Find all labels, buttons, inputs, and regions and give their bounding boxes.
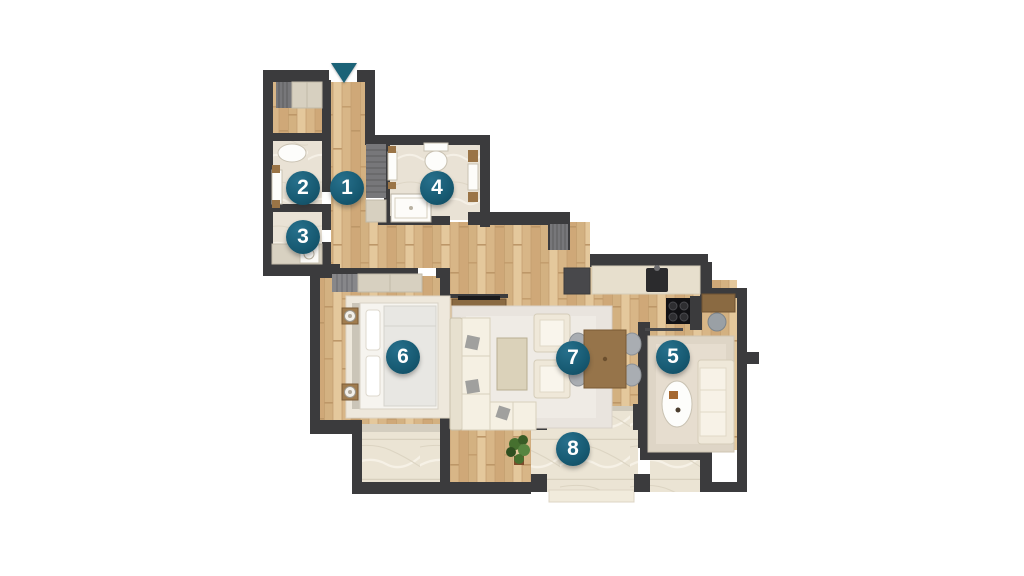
room5-sofa [698,360,734,444]
toilet-bowl [425,151,447,171]
pillow [366,356,380,396]
stove [666,298,690,324]
pillow [366,310,380,350]
tv [458,296,500,300]
tray [669,391,678,399]
balcony8-east-floor [650,460,700,492]
cabinet [468,150,478,162]
sofa-pillow [465,335,480,350]
kitchen-sink [646,268,668,292]
cabinet [468,164,478,190]
oval-coffee-table [662,381,692,427]
entry-wardrobe [276,82,322,108]
desk [702,294,735,312]
washbasin [278,144,306,162]
west-balcony-floor [362,430,440,484]
cabinet [272,165,280,173]
desk-chair [708,313,726,331]
sink [388,152,397,180]
cabinet [272,200,280,208]
room5-furniture [648,336,734,452]
blanket [384,306,436,406]
floor-plan: 12345678 [0,0,1024,576]
bed [352,303,438,409]
shaft-louver [366,144,386,222]
bedroom-wardrobe [332,274,422,292]
balcony-outer-slab [549,490,634,502]
fridge [564,268,590,294]
armchair [534,314,570,352]
living-room-furniture [450,296,641,430]
coffee-table [497,338,527,390]
entrance-hall-floor [331,82,366,224]
floor-plan-drawing [0,0,1024,576]
armchair [534,360,570,398]
washing-machine [300,245,319,263]
bedroom-furniture [332,274,450,418]
cabinet [468,192,478,202]
sink-counter [272,170,282,204]
room3-fixtures [272,244,322,264]
sofa-pillow [465,379,480,394]
toilet-tank [424,143,448,151]
kitchen-shaft-louver [550,224,568,250]
faucet [654,265,660,271]
